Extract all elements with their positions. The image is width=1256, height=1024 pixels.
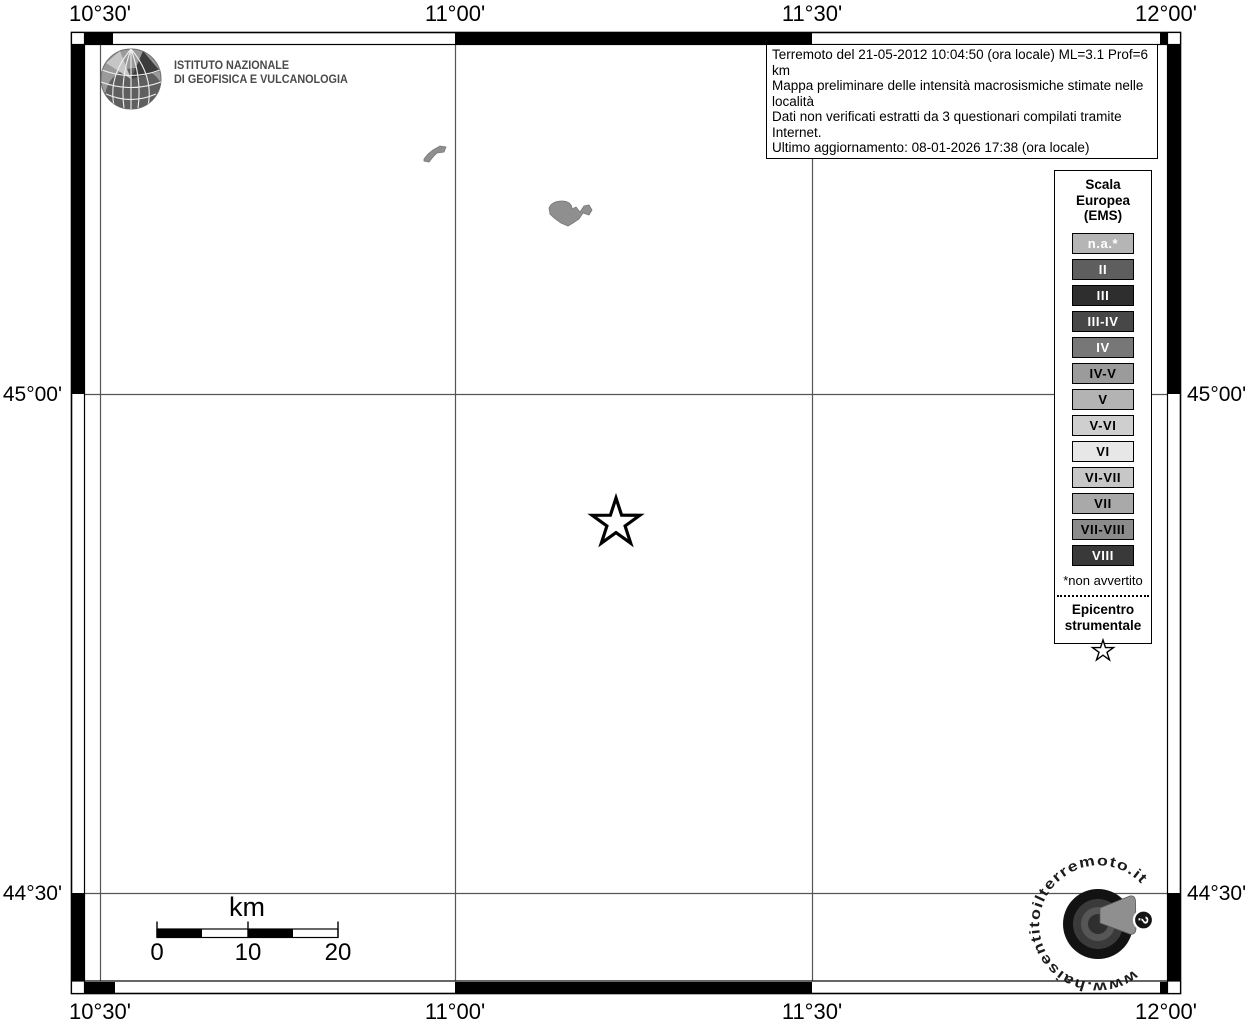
legend-swatch-v-vi: V-VI <box>1072 415 1134 436</box>
lon-label-bottom-1030: 10°30' <box>69 999 131 1024</box>
legend-swatch-iv-v: IV-V <box>1072 363 1134 384</box>
legend-swatch-iii: III <box>1072 285 1134 306</box>
legend-swatch-iii-iv: III-IV <box>1072 311 1134 332</box>
graticule <box>84 45 1168 981</box>
legend-swatch-vii-viii: VII-VIII <box>1072 519 1134 540</box>
legend-swatch-iv: IV <box>1072 337 1134 358</box>
legend-swatch-vi-vii: VI-VII <box>1072 467 1134 488</box>
legend-swatch-ii: II <box>1072 259 1134 280</box>
ingv-title-line1: ISTITUTO NAZIONALE <box>174 59 348 73</box>
lon-label-bottom-1200: 12°00' <box>1135 999 1197 1024</box>
legend-footnote: *non avvertito <box>1055 573 1151 588</box>
map-frame-lines <box>72 33 1181 994</box>
lake-polygons <box>424 146 592 226</box>
lon-label-bottom-1130: 11°30' <box>782 999 842 1024</box>
event-info-line4: Ultimo aggiornamento: 08-01-2026 17:38 (… <box>772 140 1152 156</box>
legend-title-line2: Europea <box>1055 193 1151 209</box>
lon-label-top-1130: 11°30' <box>782 1 842 27</box>
legend-title-line3: (EMS) <box>1055 208 1151 224</box>
lon-label-top-1100: 11°00' <box>425 1 485 27</box>
ingv-title-line2: DI GEOFISICA E VULCANOLOGIA <box>174 73 348 87</box>
lon-label-top-1200: 12°00' <box>1135 1 1197 27</box>
lat-label-right-4500: 45°00' <box>1187 383 1246 407</box>
event-info-line2: Mappa preliminare delle intensità macros… <box>772 78 1152 109</box>
globe-icon <box>99 46 163 110</box>
legend-divider <box>1057 595 1149 597</box>
ems-scale-legend: Scala Europea (EMS) n.a.* II III III-IV … <box>1054 170 1152 644</box>
lat-label-left-4430: 44°30' <box>0 882 62 906</box>
question-mark-icon: ? <box>1135 915 1152 925</box>
ingv-logo-block: ISTITUTO NAZIONALE DI GEOFISICA E VULCAN… <box>99 46 359 110</box>
lake-small <box>424 146 446 162</box>
scale-bar-tick-20: 20 <box>325 939 352 967</box>
legend-star-icon <box>1090 638 1116 664</box>
event-info-line3: Dati non verificati estratti da 3 questi… <box>772 109 1152 140</box>
legend-swatch-na: n.a.* <box>1072 233 1134 254</box>
legend-swatch-viii: VIII <box>1072 545 1134 566</box>
scale-bar-tick-10: 10 <box>235 939 262 967</box>
lon-label-bottom-1100: 11°00' <box>425 999 485 1024</box>
scale-bar <box>157 922 338 938</box>
legend-epicenter-line2: strumentale <box>1055 618 1151 634</box>
ingv-title: ISTITUTO NAZIONALE DI GEOFISICA E VULCAN… <box>174 59 348 110</box>
event-info-line1: Terremoto del 21-05-2012 10:04:50 (ora l… <box>772 47 1152 78</box>
legend-epicenter-line1: Epicentro <box>1055 602 1151 618</box>
lake-large <box>549 201 592 226</box>
lat-label-right-4430: 44°30' <box>1187 882 1246 906</box>
scale-bar-unit: km <box>229 892 265 923</box>
lat-label-left-4500: 45°00' <box>0 383 62 407</box>
map-frame-corners <box>72 33 1181 994</box>
legend-title-line1: Scala <box>1055 177 1151 193</box>
scale-bar-tick-0: 0 <box>150 939 163 967</box>
legend-swatch-vi: VI <box>1072 441 1134 462</box>
haisentito-logo: ? www.haisentitoilterremoto.it <box>1027 853 1153 995</box>
map-frame-checker <box>72 33 1180 993</box>
lon-label-top-1030: 10°30' <box>69 1 131 27</box>
legend-swatch-vii: VII <box>1072 493 1134 514</box>
macroseismic-map-page: ? www.haisentitoilterremoto.it 10°30' 11… <box>0 0 1256 1024</box>
event-info-box: Terremoto del 21-05-2012 10:04:50 (ora l… <box>766 44 1158 159</box>
epicenter-star-icon <box>592 498 640 543</box>
legend-swatch-v: V <box>1072 389 1134 410</box>
